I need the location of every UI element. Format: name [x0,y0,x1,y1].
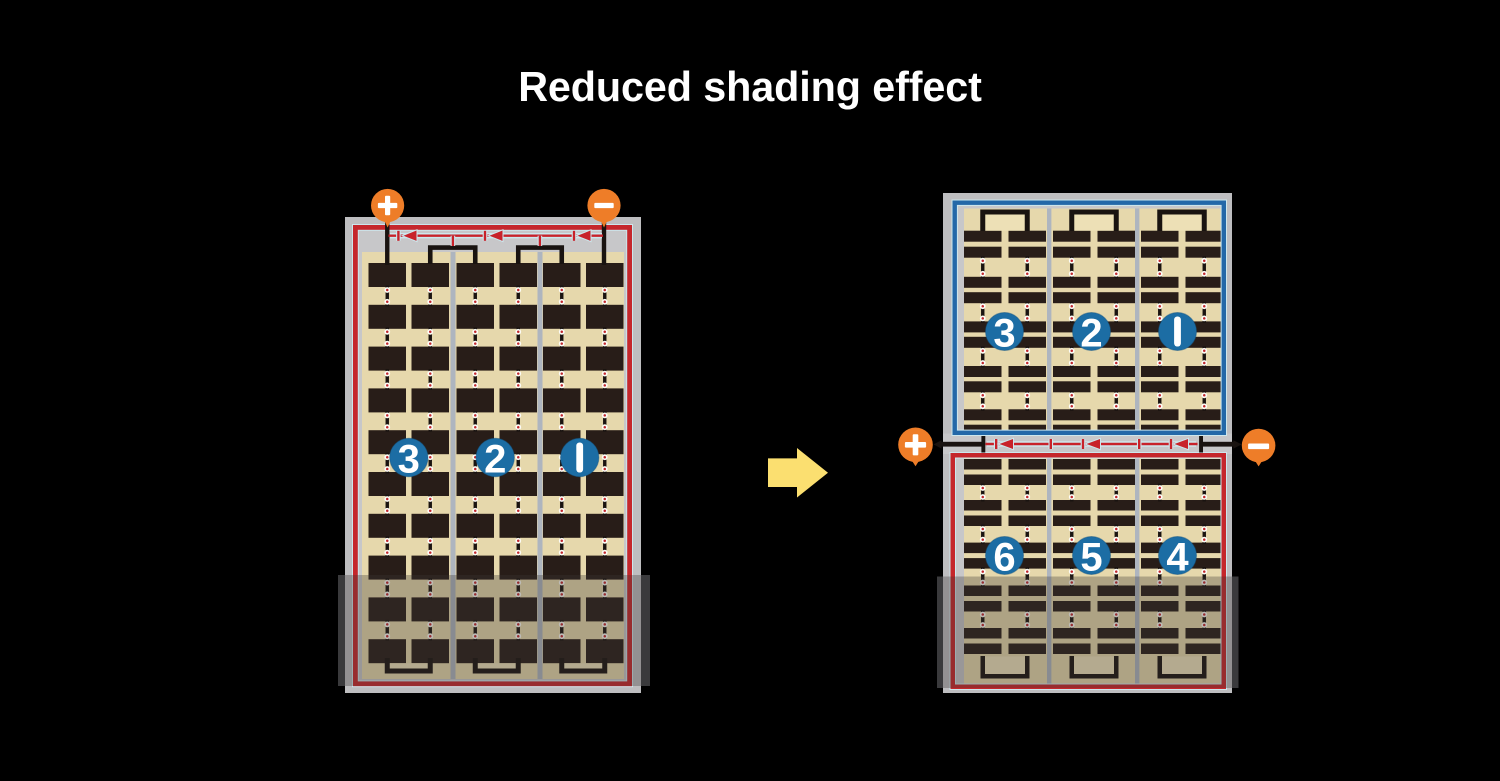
svg-text:4: 4 [1166,535,1189,579]
svg-text:6: 6 [993,535,1015,579]
svg-text:2: 2 [484,437,506,481]
svg-text:3: 3 [398,437,420,481]
svg-text:Reduced shading effect: Reduced shading effect [518,64,982,110]
svg-text:3: 3 [993,311,1015,355]
svg-text:5: 5 [1080,535,1102,579]
svg-text:2: 2 [1080,311,1102,355]
